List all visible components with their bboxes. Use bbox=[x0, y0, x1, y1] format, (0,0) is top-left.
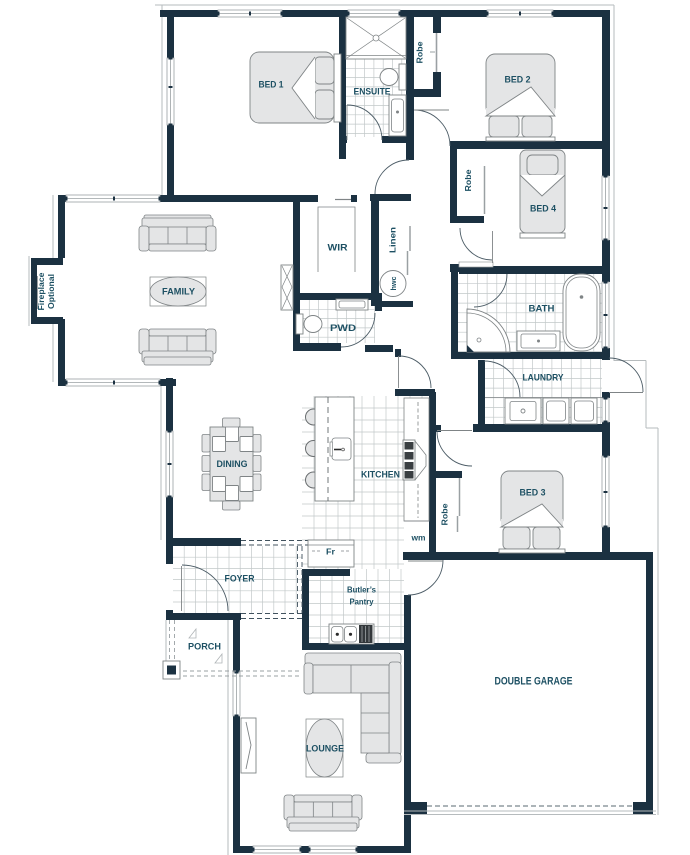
svg-text:ENSUITE: ENSUITE bbox=[354, 87, 391, 97]
svg-text:Fireplace: Fireplace bbox=[36, 272, 46, 310]
svg-text:WIR: WIR bbox=[328, 243, 349, 253]
svg-text:Butler’s: Butler’s bbox=[347, 585, 376, 595]
svg-text:Optional: Optional bbox=[46, 274, 56, 309]
svg-text:DOUBLE GARAGE: DOUBLE GARAGE bbox=[495, 676, 573, 688]
svg-text:FAMILY: FAMILY bbox=[162, 287, 195, 297]
svg-text:BED 2: BED 2 bbox=[505, 75, 531, 85]
svg-text:BED 4: BED 4 bbox=[530, 204, 556, 214]
svg-text:Robe: Robe bbox=[440, 503, 450, 525]
svg-text:FOYER: FOYER bbox=[225, 574, 255, 584]
svg-text:wm: wm bbox=[411, 533, 426, 543]
svg-text:Robe: Robe bbox=[415, 41, 425, 63]
svg-text:LOUNGE: LOUNGE bbox=[306, 744, 344, 754]
svg-text:Robe: Robe bbox=[463, 169, 473, 191]
svg-text:BED 1: BED 1 bbox=[259, 80, 284, 90]
svg-text:Linen: Linen bbox=[388, 227, 398, 253]
svg-text:DINING: DINING bbox=[217, 459, 248, 469]
svg-text:PWD: PWD bbox=[330, 323, 357, 333]
svg-text:Fr: Fr bbox=[326, 547, 336, 557]
svg-text:LAUNDRY: LAUNDRY bbox=[523, 373, 564, 383]
svg-text:BED 3: BED 3 bbox=[520, 488, 546, 498]
svg-text:hwc: hwc bbox=[389, 277, 398, 291]
svg-text:Pantry: Pantry bbox=[350, 597, 374, 607]
svg-text:PORCH: PORCH bbox=[188, 642, 221, 652]
svg-text:KITCHEN: KITCHEN bbox=[361, 470, 400, 480]
svg-text:BATH: BATH bbox=[529, 304, 555, 314]
